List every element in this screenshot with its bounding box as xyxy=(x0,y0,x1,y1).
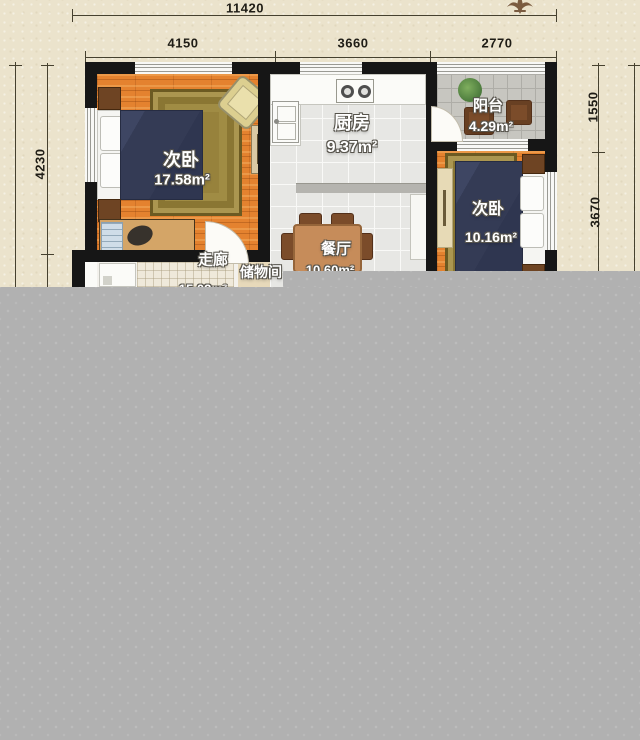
stove-burner xyxy=(358,85,371,98)
window-balcony xyxy=(437,62,548,74)
gray-overlay-bottom xyxy=(0,287,640,740)
dim-tick xyxy=(41,65,54,66)
stove xyxy=(336,79,374,103)
kitchen-bar-counter xyxy=(296,183,426,193)
bedroom-right-pillow xyxy=(520,213,544,248)
dim-tick xyxy=(592,152,605,153)
kitchen-area: 9.37m² xyxy=(327,139,378,157)
wardrobe xyxy=(437,168,453,248)
stove-burner xyxy=(341,85,354,98)
dim-segment-right: 2770 xyxy=(482,36,513,51)
window-bedroom-left-side xyxy=(85,108,97,182)
wardrobe-handle xyxy=(443,190,446,226)
sink-basin xyxy=(277,106,296,122)
nightstand xyxy=(522,154,545,174)
dim-right-upper: 1550 xyxy=(586,92,601,123)
dim-tick xyxy=(592,65,605,66)
bedroom-right-area: 10.16m² xyxy=(465,229,517,245)
dim-line-segments-top xyxy=(85,57,557,58)
window-kitchen xyxy=(300,62,362,74)
sink-basin xyxy=(277,123,296,140)
wall-middle xyxy=(258,62,270,262)
washing-machine-panel xyxy=(103,276,112,285)
storage-label: 储物间 xyxy=(240,262,282,282)
floor-plan-canvas: 11420 4150 3660 2770 4230 1550 3670 xyxy=(0,0,640,740)
bedroom-left-label: 次卧 xyxy=(163,146,199,172)
bedroom-left-area: 17.58m² xyxy=(154,172,210,189)
window-bedroom-right xyxy=(545,172,557,250)
window-balcony-bedroom xyxy=(457,139,528,151)
dining-label: 餐厅 xyxy=(321,238,351,259)
dim-segment-left: 4150 xyxy=(168,36,199,51)
dim-segment-middle: 3660 xyxy=(338,36,369,51)
dim-tick xyxy=(556,9,557,22)
kitchen-sink xyxy=(272,101,299,143)
nightstand xyxy=(98,87,121,110)
window-bedroom-left xyxy=(135,62,232,74)
balcony-area: 4.29m² xyxy=(469,118,513,134)
dim-tick xyxy=(41,254,54,255)
balcony-label: 阳台 xyxy=(473,95,503,116)
bedroom-right-label: 次卧 xyxy=(472,195,504,219)
dim-tick xyxy=(9,65,22,66)
printer xyxy=(101,222,123,252)
wall-dining-bedroom xyxy=(426,152,437,287)
bedroom-right-pillow xyxy=(520,176,544,211)
sink-faucet xyxy=(274,119,279,124)
compass-north-icon xyxy=(504,0,536,14)
bedroom-right-blanket xyxy=(455,161,523,282)
dim-total-width: 11420 xyxy=(226,1,264,16)
washing-machine xyxy=(99,263,136,287)
kitchen-label: 厨房 xyxy=(334,109,370,135)
dim-left-height: 4230 xyxy=(33,149,48,180)
dim-line-left-outer xyxy=(15,62,16,287)
wall-left-lower-jog xyxy=(72,262,85,287)
dim-line-right-outer xyxy=(634,63,635,287)
dim-line-total-top xyxy=(72,15,557,16)
dim-tick xyxy=(72,9,73,22)
dim-tick xyxy=(628,65,640,66)
dim-right-lower: 3670 xyxy=(588,197,603,228)
corridor-label: 走廊 xyxy=(198,249,228,270)
